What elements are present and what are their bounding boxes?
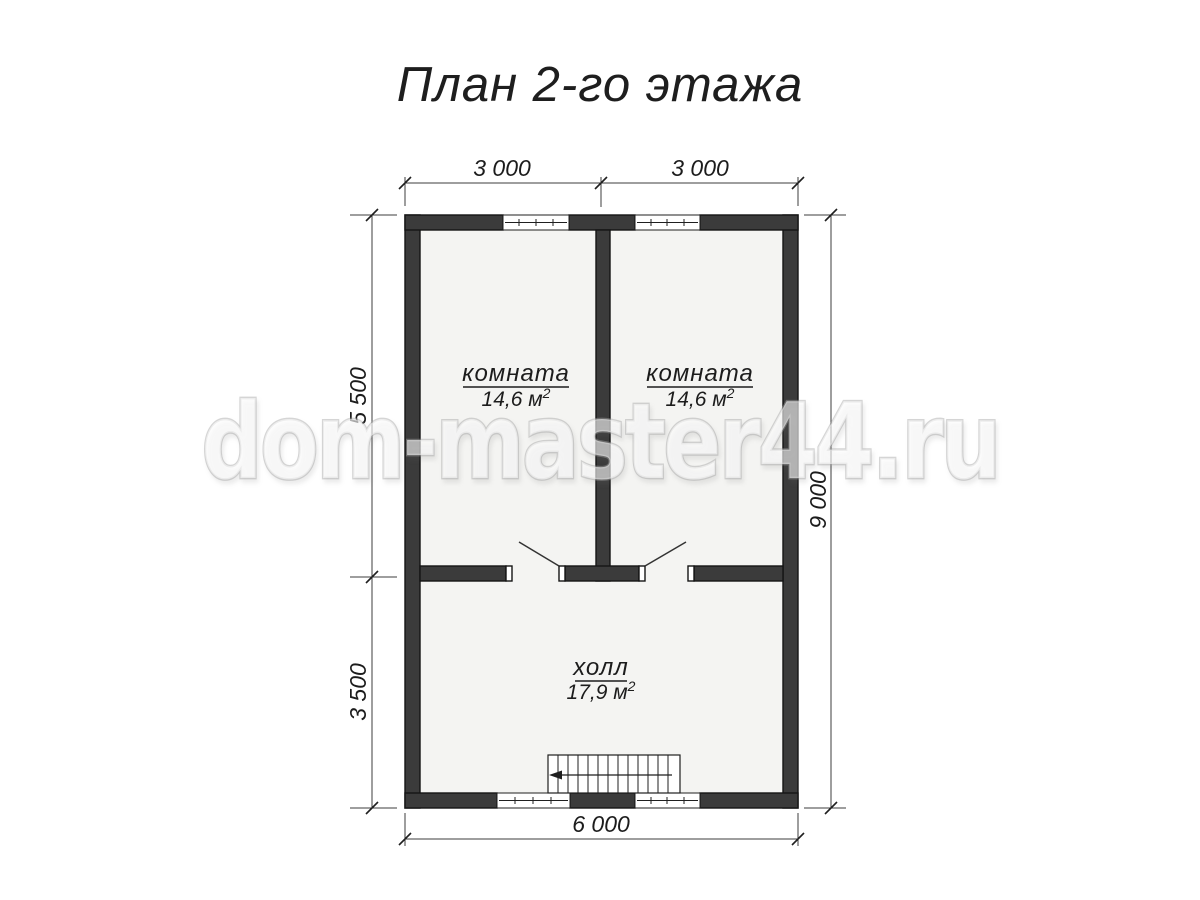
- watermark-overlay: dom-master44.ru: [0, 0, 1200, 900]
- watermark-text: dom-master44.ru: [201, 381, 998, 503]
- floor-plan-page: План 2-го этажа: [0, 0, 1200, 900]
